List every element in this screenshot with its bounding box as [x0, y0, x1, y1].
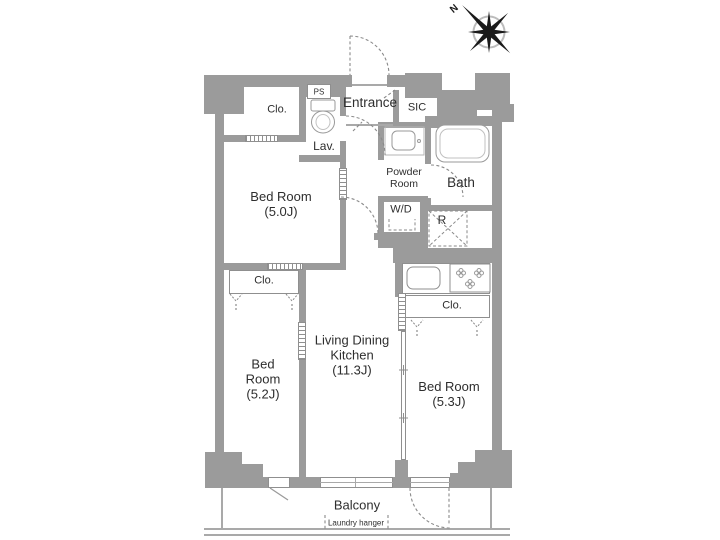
refrigerator-space-outline: [429, 211, 467, 246]
bathtub-icon: [436, 125, 489, 162]
bedroom-53-size: (5.3J): [418, 394, 479, 409]
compass-north-label: N: [448, 3, 461, 16]
ldk-line1: Living Dining: [315, 332, 389, 347]
bedroom-50-size: (5.0J): [250, 204, 311, 219]
bath-label: Bath: [447, 175, 475, 191]
bedroom-50-name: Bed Room: [250, 189, 311, 204]
closet-right-label: Clo.: [442, 300, 462, 313]
bedroom-53-label: Bed Room (5.3J): [418, 379, 479, 409]
floor-plan: N: [0, 0, 720, 540]
lavatory-door-arc: [346, 116, 385, 155]
entrance-door-arc: [350, 36, 389, 75]
toilet-icon: [311, 100, 335, 133]
closet-top-label: Clo.: [267, 104, 287, 117]
ldk-line2: Kitchen: [315, 347, 389, 362]
bedroom-52-name1: Bed: [246, 356, 281, 371]
entrance-label: Entrance: [343, 95, 397, 111]
kitchen-sink-icon: [407, 267, 440, 289]
balcony-door-line: [270, 488, 288, 500]
bedroom-52-size: (5.2J): [246, 387, 281, 402]
powder-room-label: Powder Room: [386, 166, 422, 190]
balcony-label: Balcony: [334, 497, 380, 512]
washbasin-icon: [385, 127, 424, 155]
bedroom-52-name2: Room: [246, 371, 281, 386]
bedroom-52-label: Bed Room (5.2J): [246, 356, 281, 401]
bedroom-50-label: Bed Room (5.0J): [250, 189, 311, 219]
ldk-label: Living Dining Kitchen (11.3J): [315, 332, 389, 377]
powder-room-line2: Room: [386, 178, 422, 190]
laundry-hanger-label: Laundry hanger: [328, 518, 384, 527]
stove-icon: [450, 264, 490, 292]
balcony-door-arc: [410, 488, 450, 528]
hall-ldk-door-arc: [341, 197, 378, 234]
lavatory-label: Lav.: [313, 140, 335, 154]
compass-icon: N: [448, 3, 512, 56]
washer-dryer-label: W/D: [390, 204, 411, 217]
plan-overlay: N: [0, 0, 720, 540]
partition-ticks: [399, 365, 408, 423]
ps-label: PS: [314, 87, 325, 96]
bedroom-53-name: Bed Room: [418, 379, 479, 394]
closet-left-label: Clo.: [254, 275, 274, 288]
ldk-size: (11.3J): [315, 363, 389, 378]
sic-label: SIC: [408, 102, 426, 115]
powder-room-line1: Powder: [386, 166, 422, 178]
washer-outline: [389, 219, 415, 230]
refrigerator-label: R: [438, 214, 447, 228]
